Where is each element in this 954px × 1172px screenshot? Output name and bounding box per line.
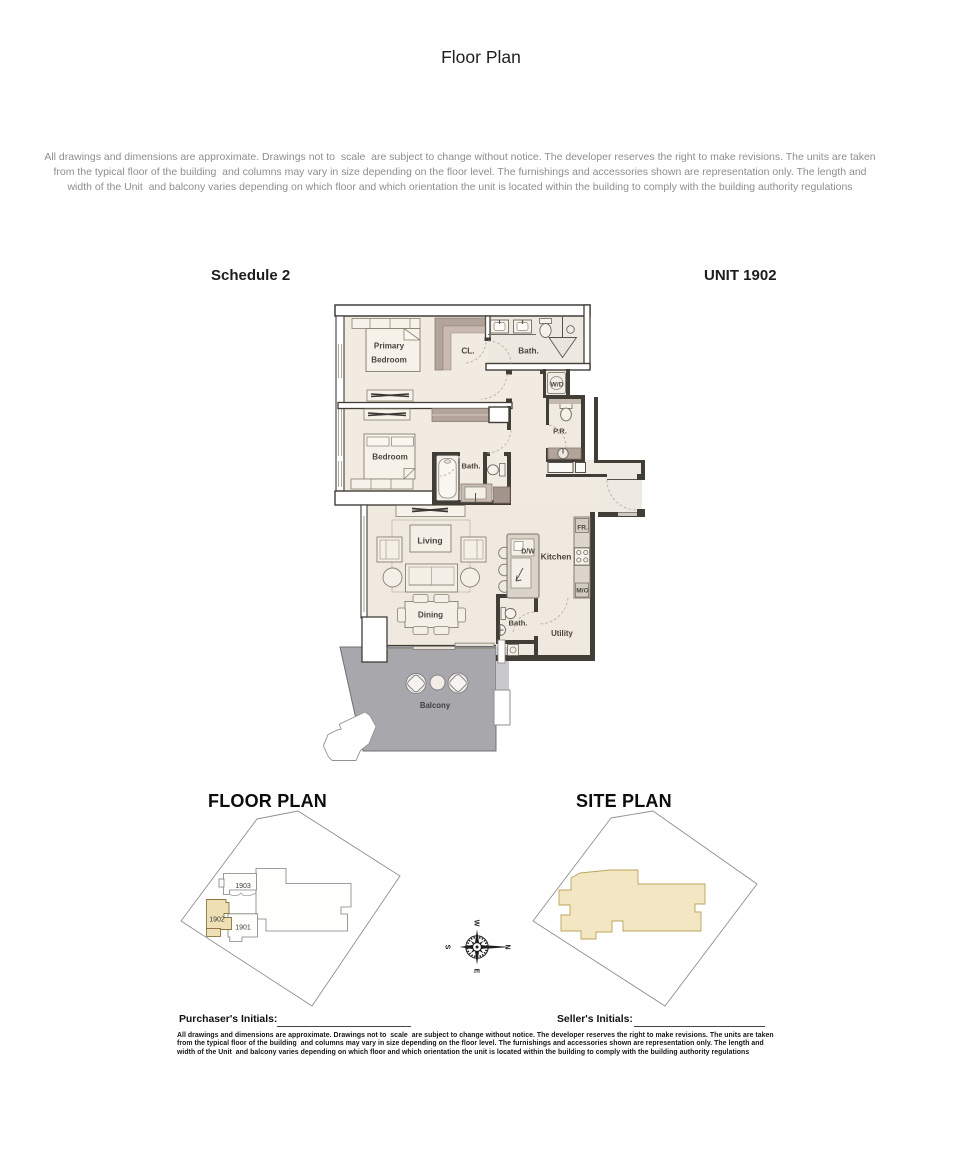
svg-text:Bedroom: Bedroom <box>371 356 407 365</box>
svg-text:Dining: Dining <box>418 611 443 620</box>
svg-text:1902: 1902 <box>209 917 225 924</box>
svg-text:Primary: Primary <box>374 342 405 351</box>
svg-text:Bath.: Bath. <box>518 347 538 356</box>
svg-text:Living: Living <box>417 536 442 546</box>
svg-text:E: E <box>473 969 480 974</box>
svg-text:S: S <box>444 945 451 950</box>
svg-text:W/D: W/D <box>550 382 563 389</box>
svg-text:FR.: FR. <box>577 525 588 532</box>
svg-text:Utility: Utility <box>551 629 573 638</box>
svg-text:Bath.: Bath. <box>462 462 481 471</box>
svg-text:M/O: M/O <box>576 588 588 595</box>
svg-text:1903: 1903 <box>235 883 251 890</box>
svg-text:1901: 1901 <box>235 925 251 932</box>
svg-text:N: N <box>504 944 511 949</box>
svg-text:W: W <box>473 920 480 927</box>
svg-text:Bedroom: Bedroom <box>372 453 408 462</box>
svg-text:Kitchen: Kitchen <box>541 552 572 562</box>
svg-text:CL.: CL. <box>461 347 474 356</box>
svg-text:D/W: D/W <box>521 549 535 556</box>
svg-text:Balcony: Balcony <box>420 701 451 710</box>
svg-text:Bath.: Bath. <box>509 619 528 628</box>
svg-text:P.R.: P.R. <box>553 427 567 436</box>
